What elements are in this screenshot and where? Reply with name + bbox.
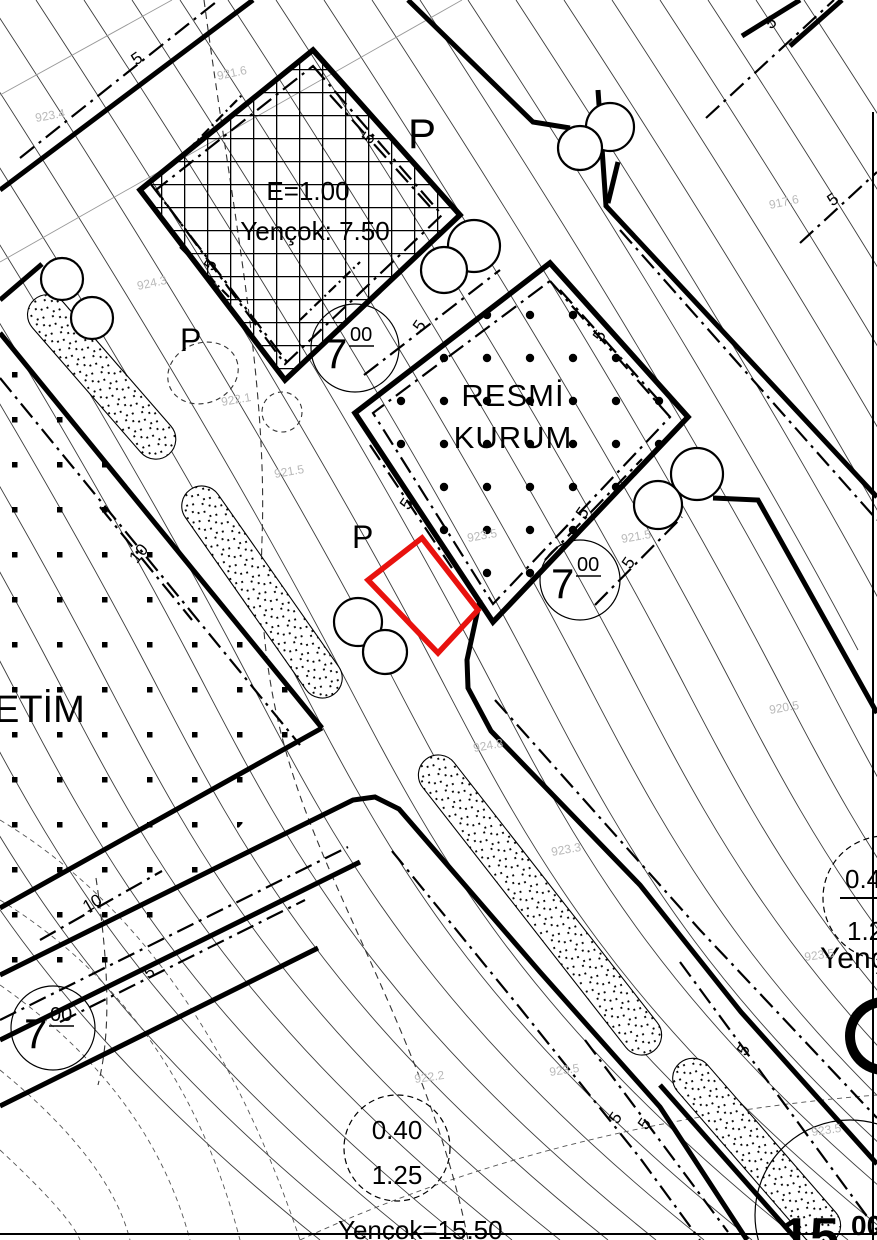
road-width-7-c-dec: 00 — [50, 1004, 72, 1026]
contour-elevation: 923.5 — [810, 1121, 842, 1139]
contour-elevation: 922.2 — [413, 1068, 445, 1086]
width5-label: 5 — [824, 189, 843, 210]
resmi-kurum-line2: KURUM — [454, 420, 573, 455]
max-height-label: Yençok: 7.50 — [240, 216, 389, 246]
contour-elevation: 924.3 — [136, 273, 169, 293]
parking-label-3: P — [352, 519, 373, 555]
contour-elevation: 921.5 — [273, 462, 305, 481]
resmi-kurum-line1: RESMİ — [461, 378, 564, 413]
width5-label: 5 — [733, 1041, 754, 1060]
far-label: E=1.00 — [266, 176, 349, 206]
contour-elevation: 923.4 — [34, 106, 66, 125]
ratio-top: 0.40 — [372, 1115, 423, 1145]
road-width-7-c: 7 — [24, 1010, 47, 1057]
parking-label-1: P — [408, 110, 436, 157]
contour-elevation: 917.6 — [768, 192, 801, 212]
zoning-map-canvas: E=1.00 Yençok: 7.50 RESMİ KURUM ETİM P P… — [0, 0, 877, 1240]
contour-elevation: 924.8 — [472, 736, 504, 755]
road-width-15-dec: 00 — [851, 1210, 877, 1240]
road-width-7-b-dec: 00 — [577, 554, 599, 576]
contour-elevation: 921.6 — [216, 63, 249, 83]
road-width-15: 15 — [781, 1208, 839, 1240]
zoning-map-sheet: E=1.00 Yençok: 7.50 RESMİ KURUM ETİM P P… — [0, 0, 877, 1240]
width5-label: 5 — [618, 554, 639, 573]
parking-label-2: P — [180, 322, 201, 358]
right-ratio-top-partial: 0.4 — [845, 864, 877, 894]
bottom-max-height-label: Yençok=15.50 — [338, 1215, 503, 1240]
education-label-partial: ETİM — [0, 688, 85, 731]
contour-elevation: 923.3 — [550, 840, 582, 859]
width5-label: 5 — [409, 317, 430, 336]
road-width-7-a-dec: 00 — [350, 324, 372, 346]
road-width-7-b: 7 — [551, 560, 574, 607]
width5-label: 5 — [605, 1109, 626, 1128]
contour-elevation: 921.5 — [620, 527, 652, 546]
ratio-bottom: 1.25 — [372, 1160, 423, 1190]
road-width-7-a: 7 — [324, 330, 347, 377]
contour-elevation: 922.1 — [220, 390, 252, 409]
